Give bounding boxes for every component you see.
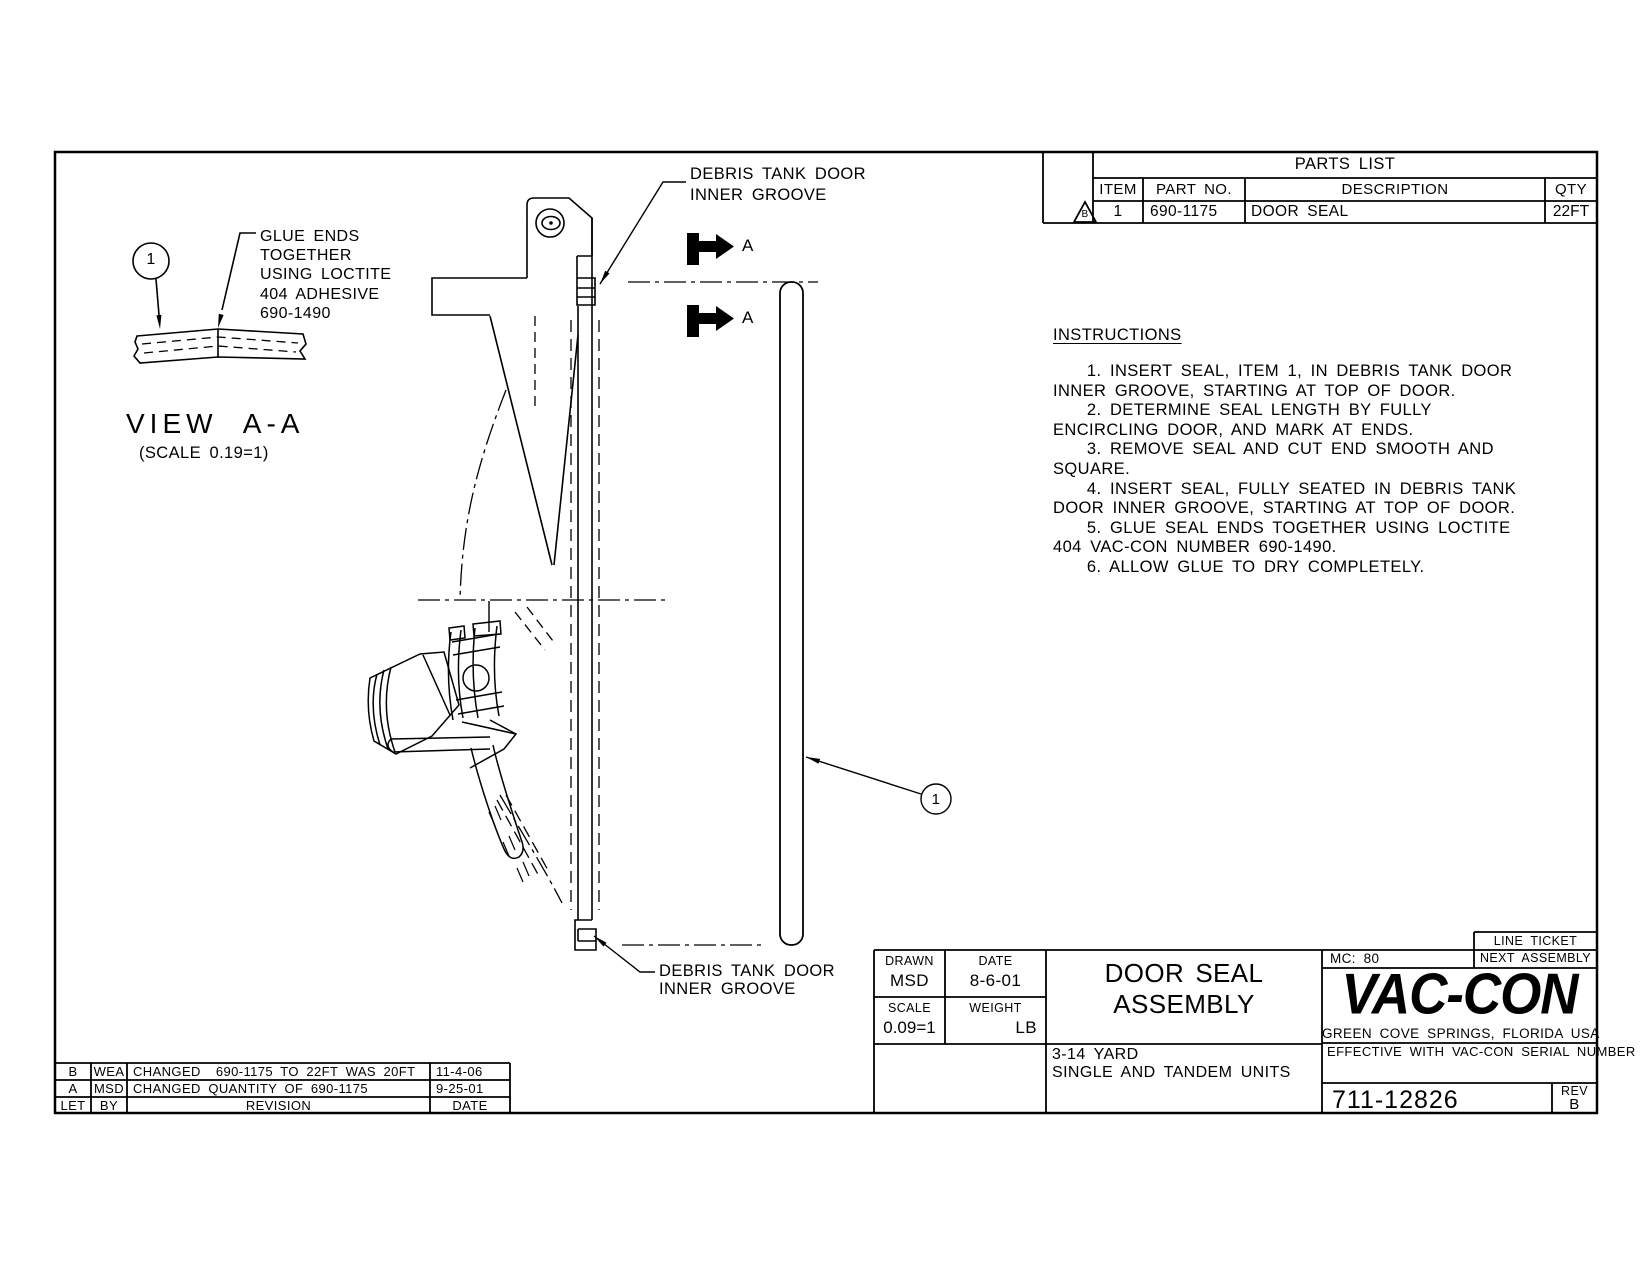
weight-value: LB: [945, 1018, 1037, 1038]
leader-arrowhead: [806, 757, 820, 764]
revision-row-text: CHANGED 690-1175 TO 22FT WAS 20FT: [133, 1065, 415, 1080]
bottom-inner-groove: [575, 920, 596, 950]
parts-list-header-description: DESCRIPTION: [1245, 181, 1545, 198]
drawn-label: DRAWN: [874, 954, 945, 968]
leader-arrowhead: [218, 314, 224, 328]
parts-list-title: PARTS LIST: [1093, 155, 1597, 174]
leader-arrowhead: [600, 271, 610, 284]
label-leaders: [594, 182, 951, 972]
revision-header-by: BY: [91, 1099, 127, 1114]
date-label: DATE: [945, 954, 1046, 968]
view-a-a-scale-note: (SCALE 0.19=1): [139, 444, 269, 463]
drawing-number: 711-12826: [1332, 1086, 1459, 1115]
revision-header-let: LET: [55, 1099, 91, 1114]
handle-loop: [471, 745, 523, 858]
scale-label: SCALE: [874, 1001, 945, 1015]
instructions-body: 1. INSERT SEAL, ITEM 1, IN DEBRIS TANK D…: [1053, 362, 1516, 578]
revision-header-date: DATE: [430, 1099, 510, 1114]
date-value: 8-6-01: [945, 971, 1046, 991]
instructions-title: INSTRUCTIONS: [1053, 326, 1182, 345]
scale-value: 0.09=1: [874, 1018, 945, 1038]
engineering-drawing-sheet: { "colors": {"line": "#000000", "paper":…: [0, 0, 1650, 1275]
line-ticket-label: LINE TICKET: [1474, 934, 1597, 948]
drawn-value: MSD: [874, 971, 945, 991]
glue-note: GLUE ENDS TOGETHER USING LOCTITE 404 ADH…: [260, 227, 391, 323]
parts-list-cell-part-no: 690-1175: [1150, 203, 1218, 221]
door-seal: [780, 282, 803, 945]
bottom-groove-label: DEBRIS TANK DOOR INNER GROOVE: [659, 962, 835, 998]
parts-list-cell-description: DOOR SEAL: [1251, 203, 1349, 221]
leader-arrowhead: [156, 315, 161, 329]
drawing-title: DOOR SEAL ASSEMBLY: [1046, 958, 1322, 1020]
effective-note: EFFECTIVE WITH VAC-CON SERIAL NUMBER: [1327, 1045, 1636, 1060]
section-letter-top: A: [742, 236, 754, 256]
hinge-bracket: [527, 198, 592, 278]
revision-row-date: 9-25-01: [436, 1082, 484, 1097]
roller-bracket: [448, 626, 499, 720]
section-arrow-top: [687, 233, 734, 265]
revision-header-text: REVISION: [127, 1099, 430, 1114]
rev-value: B: [1552, 1096, 1597, 1113]
section-letter-bottom: A: [742, 308, 754, 328]
hinge-plate: [432, 278, 527, 315]
revision-row-by: MSD: [91, 1082, 127, 1097]
latch-foot: [462, 720, 516, 768]
parts-list-header-qty: QTY: [1545, 181, 1597, 198]
balloon-number: 1: [141, 251, 161, 269]
weight-label: WEIGHT: [945, 1001, 1046, 1015]
centerlines: [418, 282, 818, 945]
view-a-a-title: VIEW A-A: [126, 408, 304, 440]
revision-flag-letter: B: [1077, 209, 1093, 221]
logo-subtitle: GREEN COVE SPRINGS, FLORIDA USA: [1322, 1026, 1597, 1042]
balloon-number: 1: [926, 791, 946, 808]
section-arrow-bottom: [687, 305, 734, 337]
parts-list-cell-item: 1: [1093, 203, 1143, 221]
bracket-taper: [490, 316, 578, 565]
door-edge: [578, 218, 592, 920]
parts-list-header-item: ITEM: [1093, 181, 1143, 198]
revision-row-let: B: [55, 1065, 91, 1080]
revision-row-text: CHANGED QUANTITY OF 690-1175: [133, 1082, 368, 1097]
parts-list-header-part-no: PART NO.: [1143, 181, 1245, 198]
latch-assembly: [368, 607, 556, 882]
top-groove-label: DEBRIS TANK DOOR INNER GROOVE: [690, 164, 866, 205]
roller: [463, 665, 489, 691]
vac-con-logo: VAC-CON: [1314, 962, 1606, 1029]
revision-row-by: WEA: [91, 1065, 127, 1080]
parts-list-cell-qty: 22FT: [1545, 203, 1597, 221]
units-note: 3-14 YARD SINGLE AND TANDEM UNITS: [1052, 1046, 1291, 1082]
revision-row-date: 11-4-06: [436, 1065, 483, 1080]
revision-row-let: A: [55, 1082, 91, 1097]
